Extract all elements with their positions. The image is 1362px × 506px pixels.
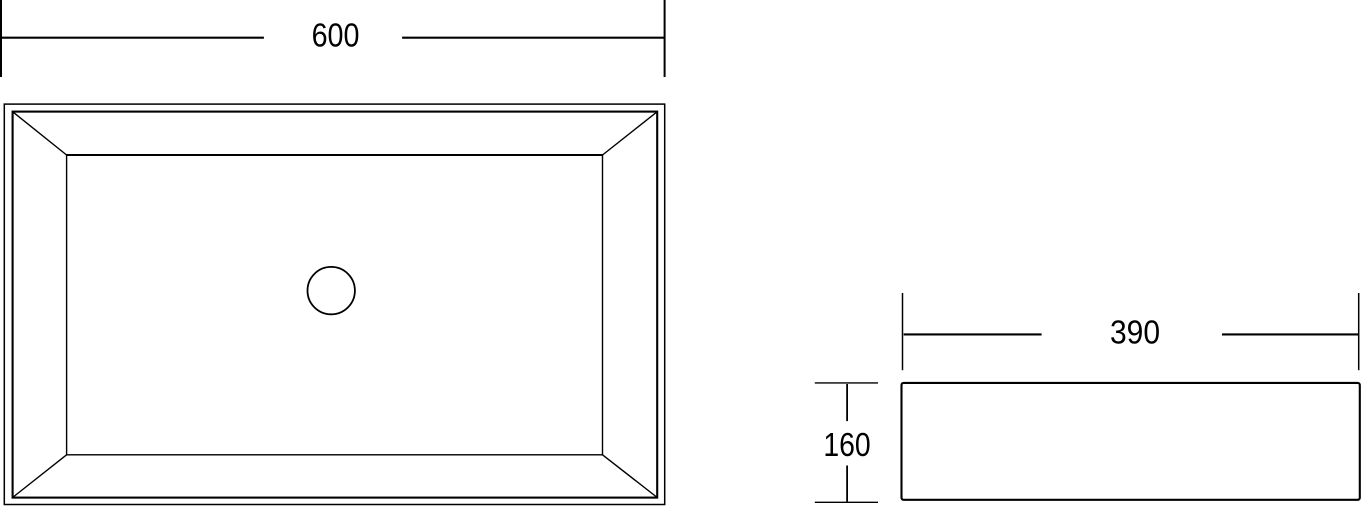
svg-text:600: 600 [312,17,360,54]
svg-text:160: 160 [823,426,870,464]
svg-text:390: 390 [1110,313,1160,351]
